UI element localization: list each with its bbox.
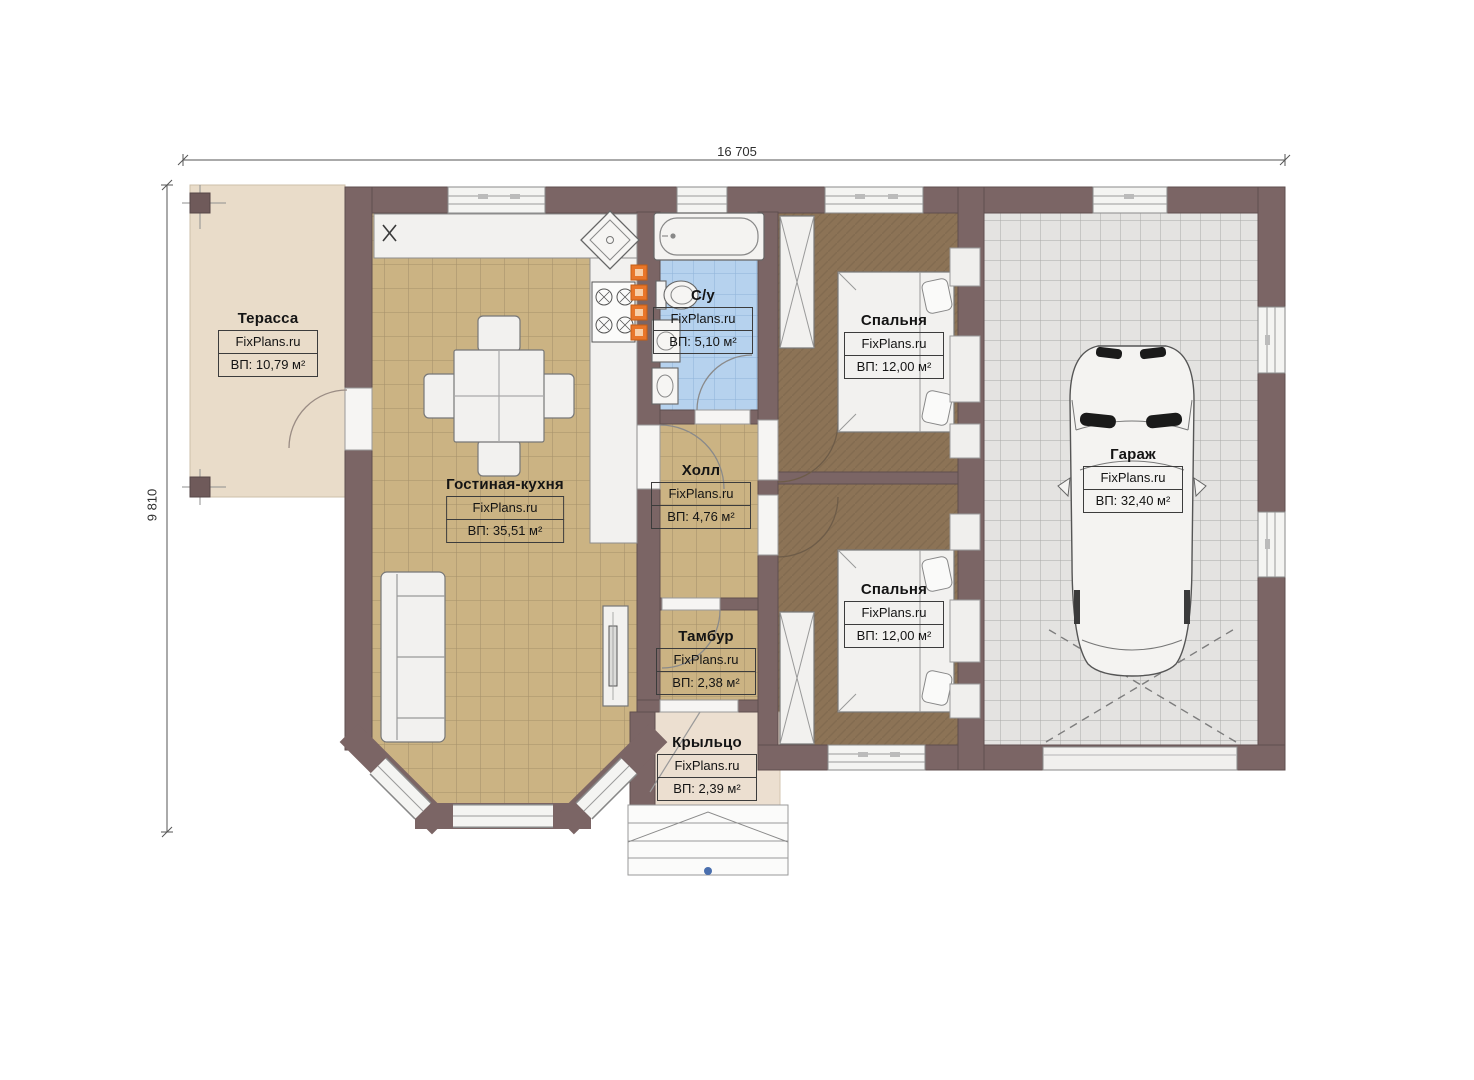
dimension-height: 9 810 <box>145 489 160 522</box>
area-box-hall: ВП: 4,76 м² <box>651 505 751 529</box>
stove <box>592 282 635 342</box>
kitchen-window <box>448 187 545 213</box>
room-label-garage: Гараж FixPlans.ru ВП: 32,40 м² <box>1083 446 1183 513</box>
room-name-bedroom1: Спальня <box>844 312 944 329</box>
brand-box-bedroom1: FixPlans.ru <box>844 332 944 356</box>
garage-window-top <box>1093 187 1167 213</box>
bathroom-sink <box>652 368 678 404</box>
room-label-hall: Холл FixPlans.ru ВП: 4,76 м² <box>651 462 751 529</box>
wardrobe-bedroom1 <box>780 216 814 348</box>
garage-window-right-2 <box>1258 512 1285 577</box>
floor-plan-page: 16 705 9 810 Терасса FixPlans.ru ВП: 10,… <box>0 0 1474 1080</box>
room-name-bedroom2: Спальня <box>844 581 944 598</box>
area-box-bedroom2: ВП: 12,00 м² <box>844 624 944 648</box>
area-box-garage: ВП: 32,40 м² <box>1083 489 1183 513</box>
garage-window-right-1 <box>1258 307 1285 373</box>
wall-left <box>345 187 372 750</box>
room-label-living: Гостиная-кухня FixPlans.ru ВП: 35,51 м² <box>446 476 564 543</box>
room-name-garage: Гараж <box>1083 446 1183 463</box>
room-name-living: Гостиная-кухня <box>446 476 564 493</box>
room-name-hall: Холл <box>651 462 751 479</box>
area-box-terrace: ВП: 10,79 м² <box>218 353 318 377</box>
bedroom1-window <box>825 187 923 213</box>
room-label-bedroom1: Спальня FixPlans.ru ВП: 12,00 м² <box>844 312 944 379</box>
area-box-bathroom: ВП: 5,10 м² <box>653 330 753 354</box>
room-label-porch: Крыльцо FixPlans.ru ВП: 2,39 м² <box>657 734 757 801</box>
brand-box-terrace: FixPlans.ru <box>218 330 318 354</box>
area-box-bedroom1: ВП: 12,00 м² <box>844 355 944 379</box>
room-label-bedroom2: Спальня FixPlans.ru ВП: 12,00 м² <box>844 581 944 648</box>
dining-chair-bottom <box>478 440 520 476</box>
brand-box-garage: FixPlans.ru <box>1083 466 1183 490</box>
area-box-living: ВП: 35,51 м² <box>446 519 564 543</box>
brand-box-living: FixPlans.ru <box>446 496 564 520</box>
room-name-tambur: Тамбур <box>656 628 756 645</box>
brand-box-bedroom2: FixPlans.ru <box>844 601 944 625</box>
room-name-terrace: Терасса <box>218 310 318 327</box>
entry-marker <box>704 867 712 875</box>
area-box-tambur: ВП: 2,38 м² <box>656 671 756 695</box>
area-box-porch: ВП: 2,39 м² <box>657 777 757 801</box>
room-label-bathroom: С/у FixPlans.ru ВП: 5,10 м² <box>653 287 753 354</box>
porch-steps <box>628 805 788 875</box>
floor-plan-drawing <box>0 0 1474 1080</box>
brand-box-porch: FixPlans.ru <box>657 754 757 778</box>
room-name-porch: Крыльцо <box>657 734 757 751</box>
wardrobe-bedroom2 <box>780 612 814 744</box>
dining-chair-top <box>478 316 520 352</box>
tv-stand <box>603 606 628 706</box>
sofa <box>381 572 445 742</box>
bathroom-window <box>677 187 727 213</box>
brand-box-bathroom: FixPlans.ru <box>653 307 753 331</box>
bedroom2-window <box>828 745 925 770</box>
wall-right <box>1258 187 1285 770</box>
bathtub <box>654 213 764 260</box>
dimension-width: 16 705 <box>717 144 757 159</box>
room-label-terrace: Терасса FixPlans.ru ВП: 10,79 м² <box>218 310 318 377</box>
room-name-bathroom: С/у <box>653 287 753 304</box>
brand-box-tambur: FixPlans.ru <box>656 648 756 672</box>
brand-box-hall: FixPlans.ru <box>651 482 751 506</box>
room-label-tambur: Тамбур FixPlans.ru ВП: 2,38 м² <box>656 628 756 695</box>
wall-bedroom-divider <box>778 472 958 484</box>
